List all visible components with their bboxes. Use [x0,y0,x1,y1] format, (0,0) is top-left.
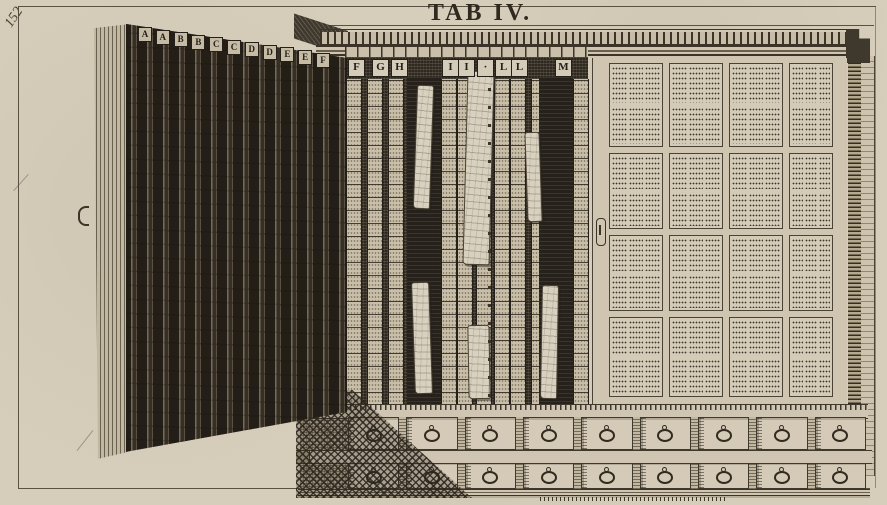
index-card [789,317,833,397]
index-card [609,235,663,311]
card-dotted-text [672,66,687,103]
card-dotted-text [612,156,627,189]
card-line-group [672,275,720,308]
card-dotted-text [705,107,720,144]
index-card [609,63,663,147]
card-dotted-text [792,193,803,226]
drawer [523,462,574,489]
card-dotted-text [732,320,747,355]
card-dotted-text [792,320,803,355]
card-dotted-text [765,107,780,144]
drawer [465,462,516,489]
column-letter-tab: G [372,59,389,77]
card-dotted-text [732,193,747,226]
card-dotted-text [705,66,720,103]
card-dotted-text [805,359,816,394]
card-dotted-text [689,66,704,103]
card-line-group [792,156,830,189]
card-line-group [672,156,720,189]
specimen-sheet [540,285,559,399]
plate-title: TAB IV. [360,0,600,27]
drawer-ring-pull-icon [774,471,790,484]
drawer [640,462,691,489]
card-dotted-text [645,193,660,226]
drawer [815,462,866,489]
drawer [698,462,749,489]
card-line-group [732,320,780,355]
column-letter-tab: F [348,59,365,77]
card-dotted-text [819,320,830,355]
door-letter-tab: A [156,30,170,45]
card-dotted-text [689,359,704,394]
card-dotted-text [645,66,660,103]
card-dotted-text [645,275,660,308]
card-line-group [612,156,660,189]
card-dotted-text [672,359,687,394]
card-dotted-text [689,193,704,226]
card-dotted-text [629,320,644,355]
door-letter-tab: C [209,37,223,52]
card-dotted-text [749,107,764,144]
drawer-ring-pull-icon [716,429,732,442]
card-line-group [612,107,660,144]
door-letter-tab: A [138,27,152,42]
card-dotted-text [819,156,830,189]
card-dotted-text [819,275,830,308]
card-dotted-text [629,66,644,103]
index-card [669,235,723,311]
index-card [609,153,663,229]
drawer-ring-pull-icon [657,429,673,442]
plate-border-right [875,6,876,488]
card-dotted-text [749,66,764,103]
door-letter-tab: D [263,45,277,60]
drawer-ring-pull-icon [716,471,732,484]
card-dotted-text [672,193,687,226]
index-card [789,153,833,229]
index-card [609,317,663,397]
card-dotted-text [612,238,627,271]
card-line-group [612,320,660,355]
specimen-sheet [413,85,434,210]
card-dotted-text [672,107,687,144]
drawer-ring-pull-icon [832,471,848,484]
door-letter-tab: C [227,40,241,55]
card-dotted-text [705,238,720,271]
drawer [756,462,807,489]
card-dotted-text [629,193,644,226]
drawer [406,417,457,450]
drawer-ring-pull-icon [482,471,498,484]
card-dotted-text [705,320,720,355]
drawer-ring-pull-icon [657,471,673,484]
drawer [815,417,866,450]
drawer-ring-pull-icon [541,429,557,442]
card-dotted-text [805,238,816,271]
column-letter-tab: L [495,59,512,77]
card-dotted-text [765,66,780,103]
card-dotted-text [705,156,720,189]
card-dotted-text [629,238,644,271]
card-dotted-text [629,156,644,189]
card-line-group [792,320,830,355]
drawer-row-upper [348,417,866,450]
drawer [698,417,749,450]
page-number: 152 [2,5,27,31]
card-dotted-text [645,320,660,355]
card-line-group [792,193,830,226]
door-letter-tab: B [191,35,205,50]
drawer-ring-pull-icon [424,429,440,442]
card-dotted-text [805,156,816,189]
card-dotted-text [749,193,764,226]
plate-border-left [18,6,19,489]
card-dotted-text [749,320,764,355]
card-dotted-text [765,156,780,189]
card-dotted-text [765,359,780,394]
drawer-ring-pull-icon [832,429,848,442]
card-dotted-text [612,193,627,226]
column-letter-tab: M [555,59,572,77]
door-letter-tab: E [298,50,312,65]
drawer [640,417,691,450]
card-line-group [732,359,780,394]
paper-scratch [77,430,94,451]
door-letter-tab: B [174,32,188,47]
column-letter-tab: I [458,59,475,77]
card-dotted-text [645,107,660,144]
specimen-sheet [524,132,542,222]
open-door-edge [88,22,128,462]
card-dotted-text [612,275,627,308]
card-dotted-text [805,107,816,144]
drawer [465,417,516,450]
drawer [581,462,632,489]
card-dotted-text [705,275,720,308]
right-door-interior [592,58,847,407]
card-dotted-text [765,193,780,226]
drawer-ring-pull-icon [482,429,498,442]
card-dotted-text [672,156,687,189]
index-card [729,317,783,397]
card-dotted-text [792,66,803,103]
card-dotted-text [672,320,687,355]
index-card [669,63,723,147]
door-letter-row: AABBCCDDEEF [138,27,348,87]
card-dotted-text [629,359,644,394]
card-line-group [732,66,780,103]
column-letter-tab: I [442,59,459,77]
index-card [669,317,723,397]
index-card [729,63,783,147]
card-dotted-text [765,238,780,271]
specimen-sheets [345,57,588,406]
card-dotted-text [819,107,830,144]
card-dotted-text [792,359,803,394]
card-dotted-text [732,275,747,308]
card-line-group [732,275,780,308]
card-dotted-text [705,359,720,394]
card-dotted-text [765,320,780,355]
index-card [729,153,783,229]
index-card [789,235,833,311]
card-dotted-text [749,359,764,394]
card-dotted-text [689,275,704,308]
card-dotted-text [732,66,747,103]
card-dotted-text [612,320,627,355]
drawer-ring-pull-icon [599,429,615,442]
card-dotted-text [819,238,830,271]
card-line-group [732,193,780,226]
card-dotted-text [732,107,747,144]
card-line-group [792,275,830,308]
door-letter-tab: E [280,47,294,62]
door-latch-icon [78,206,89,226]
column-letter-tab: H [391,59,408,77]
card-dotted-text [805,320,816,355]
card-line-group [792,107,830,144]
card-line-group [612,238,660,271]
card-dotted-text [819,193,830,226]
card-dotted-text [792,275,803,308]
specimen-shelves: FGHII·LLM [345,57,588,406]
card-line-group [732,107,780,144]
column-letter-row: FGHII·LLM [345,57,588,79]
card-dotted-text [792,156,803,189]
index-card [669,153,723,229]
cornice-top-line [318,29,852,30]
card-dotted-text [732,156,747,189]
card-dotted-text [689,238,704,271]
card-dotted-text [645,238,660,271]
card-dotted-text [819,66,830,103]
drawer-ring-pull-icon [541,471,557,484]
card-line-group [732,156,780,189]
card-dotted-text [672,275,687,308]
card-dotted-text [732,238,747,271]
card-dotted-text [749,275,764,308]
card-dotted-text [705,193,720,226]
open-door-grid [126,24,347,454]
card-dotted-text [645,359,660,394]
index-card [729,235,783,311]
column-letter-tab: · [477,59,494,77]
card-dotted-text [612,107,627,144]
card-dotted-text [689,156,704,189]
door-letter-tab: F [316,53,330,68]
card-dotted-text [792,107,803,144]
card-dotted-text [689,320,704,355]
cornice-dentils [320,32,848,45]
card-dotted-text [689,107,704,144]
drawer-ring-pull-icon [599,471,615,484]
card-line-group [672,66,720,103]
card-line-group [732,238,780,271]
card-line-group [672,107,720,144]
card-dotted-text [805,66,816,103]
card-dotted-text [645,156,660,189]
card-dotted-text [805,275,816,308]
card-line-group [612,275,660,308]
card-line-group [792,238,830,271]
specimen-sheet [411,282,433,395]
card-dotted-text [672,238,687,271]
card-line-group [612,193,660,226]
keyhole-escutcheon-icon [596,218,606,246]
base-shadow-hatch [540,497,725,501]
card-dotted-text [765,275,780,308]
card-dotted-text [612,359,627,394]
drawer [581,417,632,450]
card-line-group [612,66,660,103]
card-line-group [672,359,720,394]
card-dotted-text [792,238,803,271]
card-dotted-text [629,275,644,308]
cornice-end-cap [846,29,870,63]
card-line-group [672,320,720,355]
card-line-group [792,359,830,394]
card-dotted-text [749,156,764,189]
door-letter-tab: D [245,42,259,57]
index-card [789,63,833,147]
drawer [523,417,574,450]
paper-scratch [13,174,28,191]
card-dotted-text [749,238,764,271]
drawer-ring-pull-icon [774,429,790,442]
card-line-group [672,238,720,271]
dotted-spine [488,87,491,397]
card-dotted-text [732,359,747,394]
card-dotted-text [629,107,644,144]
card-line-group [612,359,660,394]
card-line-group [792,66,830,103]
column-letter-tab: L [511,59,528,77]
card-dotted-text [612,66,627,103]
card-line-group [672,193,720,226]
engraving-plate: 152 TAB IV. FGHII·LLM AABBCCDDEEF [0,0,887,505]
card-dotted-text [819,359,830,394]
index-card-grid [609,63,843,401]
drawer [756,417,807,450]
card-dotted-text [805,193,816,226]
